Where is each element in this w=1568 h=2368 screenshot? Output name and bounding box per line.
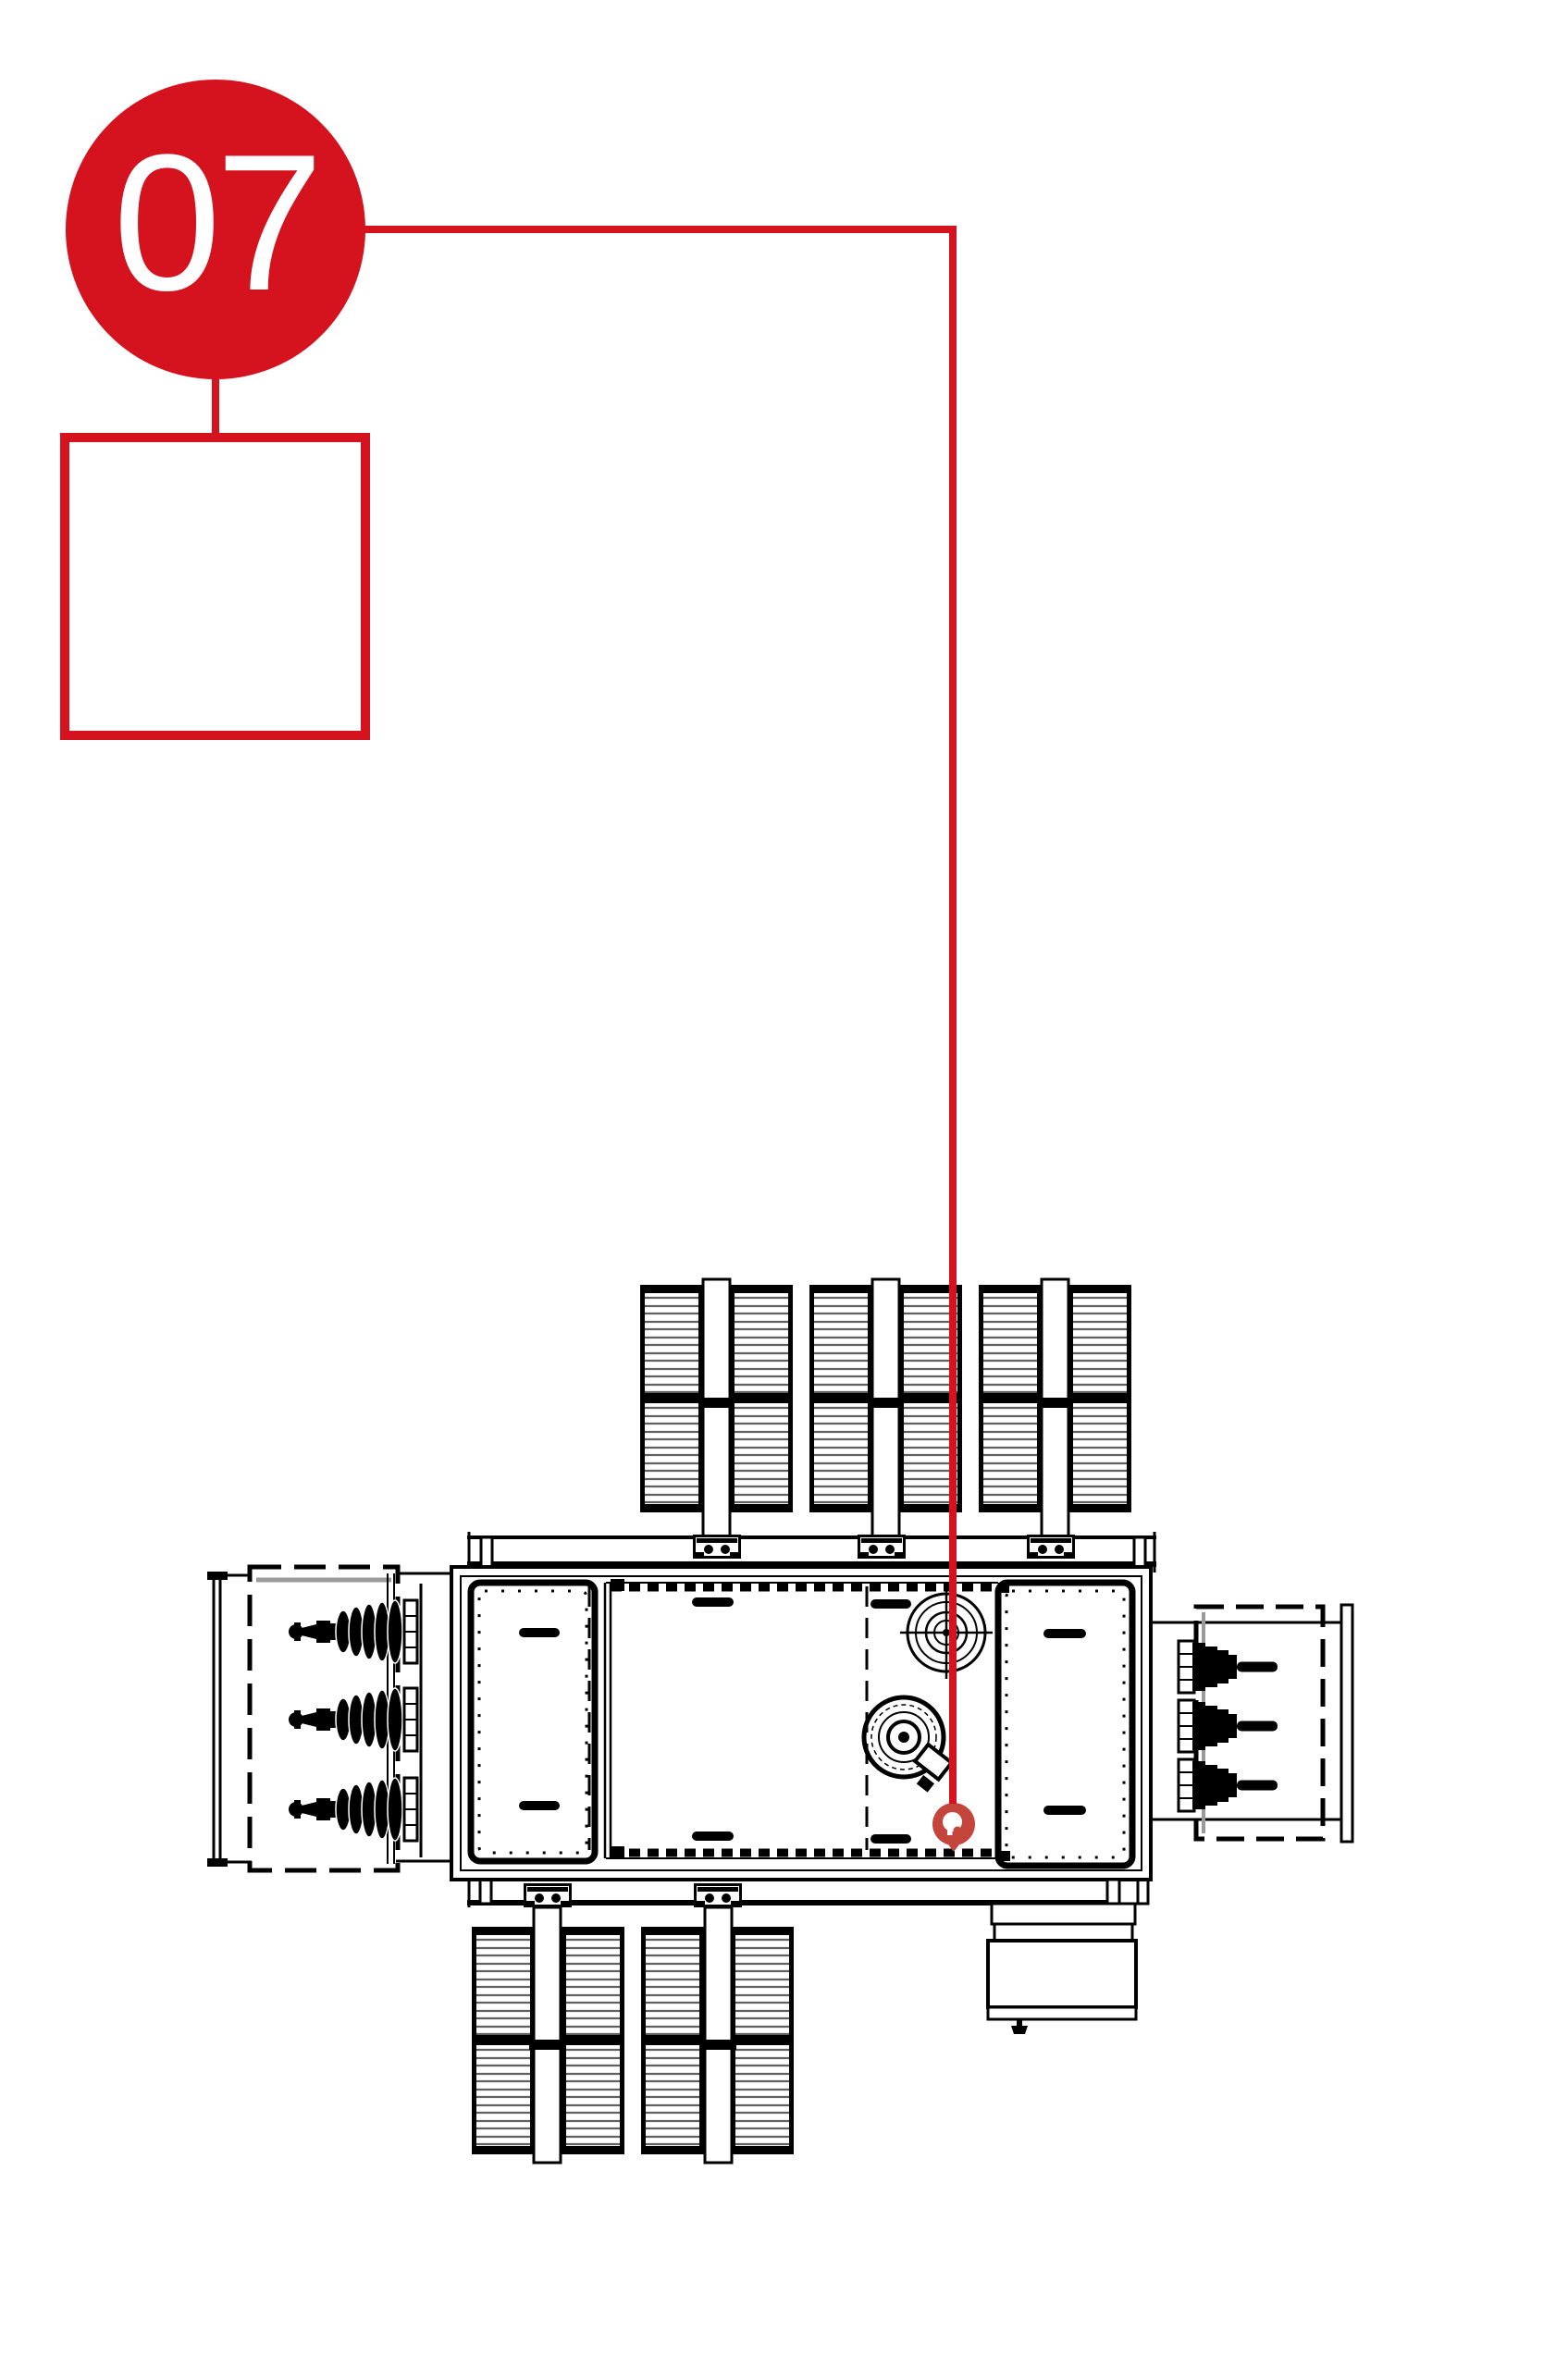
- callout-leader-vertical: [949, 226, 957, 1804]
- bottom-radiator-bank: [472, 1885, 794, 2164]
- cooling-box: [988, 1880, 1136, 2034]
- hv-bushing-assembly: [207, 1567, 451, 1870]
- callout-number: 07: [113, 126, 318, 333]
- callout-circle: 07: [66, 80, 365, 379]
- callout-leader-to-box: [212, 375, 219, 436]
- tank-right-compartment: [998, 1583, 1132, 1866]
- top-radiator-bank: [640, 1279, 1131, 1558]
- reference-box: [60, 433, 370, 740]
- tank-left-compartment: [471, 1583, 595, 1861]
- page: 07: [0, 0, 1568, 2368]
- lv-bushing-assembly: [1150, 1605, 1352, 1842]
- callout-leader-horizontal: [364, 226, 957, 233]
- main-tank: [451, 1567, 1151, 1880]
